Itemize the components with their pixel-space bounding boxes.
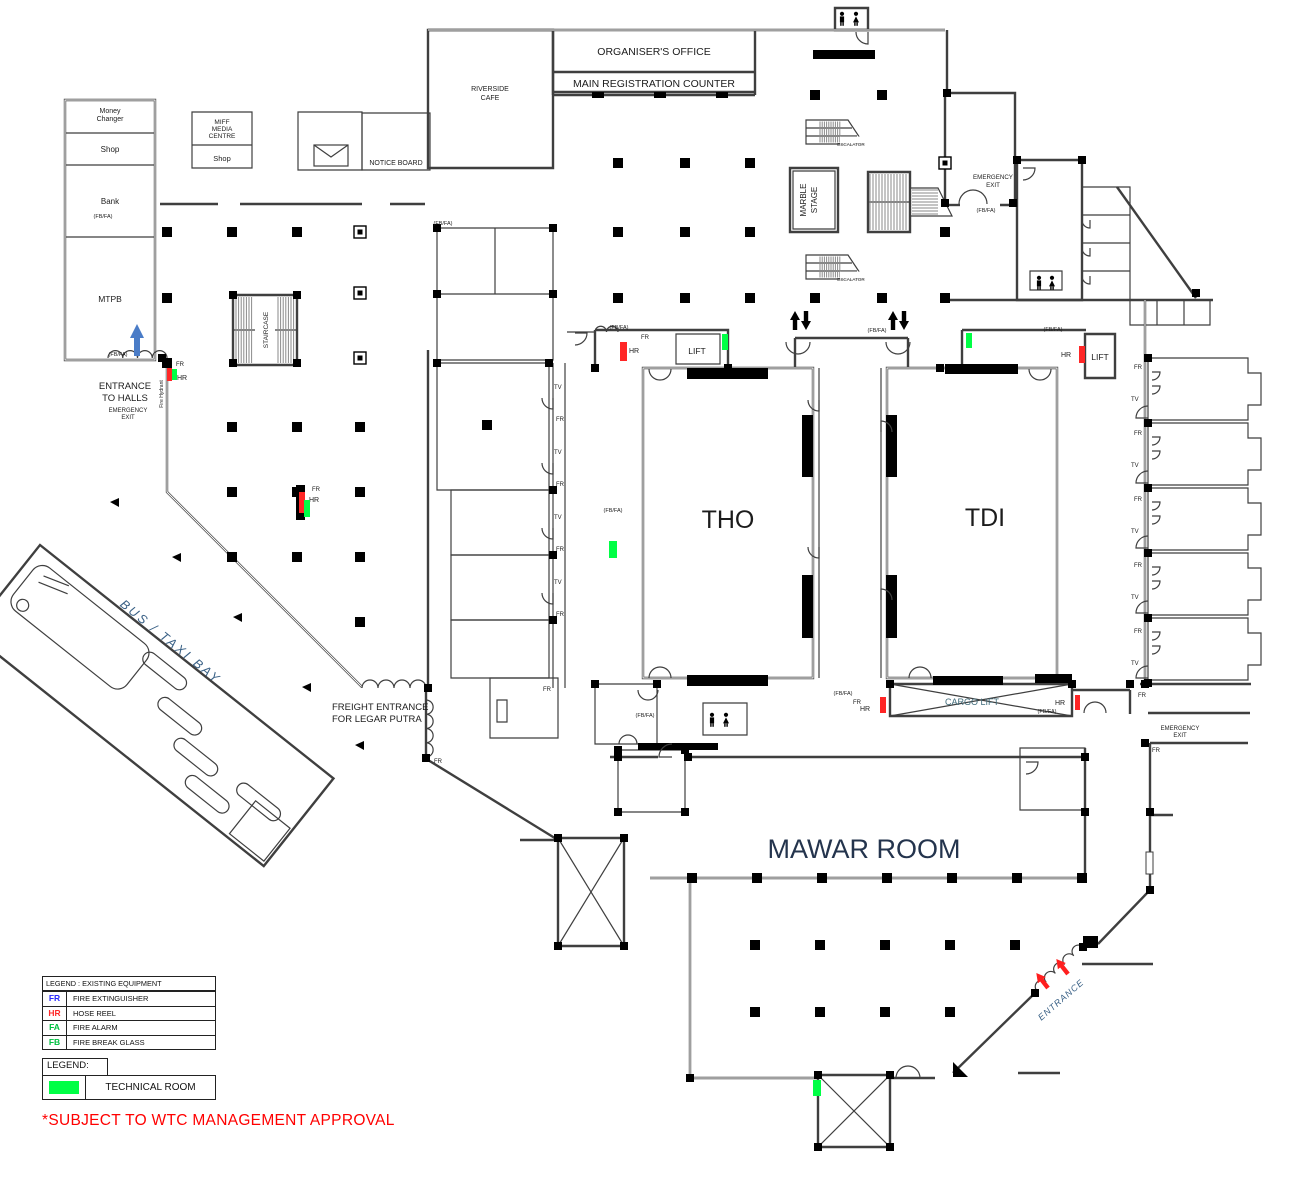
hose-reel-box	[1075, 695, 1080, 710]
technical-room-marker	[813, 1080, 821, 1096]
technical-room-label: TECHNICAL ROOM	[86, 1082, 215, 1093]
hose-reel-box	[620, 342, 627, 361]
label-bus-taxi-bay: BUS / TAXI BAY	[117, 597, 223, 687]
label-shop-top: Shop	[101, 145, 120, 154]
technical-legend-title: LEGEND:	[42, 1058, 108, 1076]
hose-reel-marker: HR	[629, 348, 639, 355]
labels-layer: Money Changer Shop Bank MTPB MIFF MEDIA …	[97, 46, 1200, 1022]
label-emergency-exit-tr: EMERGENCY	[973, 174, 1013, 181]
columns-layer	[110, 89, 1200, 1151]
fire-alarm-break-glass-marker: (FB/FA)	[109, 352, 128, 358]
label-miff: MIFF	[214, 119, 229, 126]
fire-extinguisher-marker: FR	[556, 482, 565, 488]
svg-text:MEDIA: MEDIA	[212, 126, 233, 133]
fire-extinguisher-marker: FR	[556, 612, 565, 618]
label-shop-mid: Shop	[213, 154, 231, 163]
tv-marker: TV	[1131, 529, 1139, 535]
label-mawar-room: MAWAR ROOM	[768, 834, 961, 864]
walls-layer	[65, 8, 1261, 1147]
technical-room-marker	[722, 334, 728, 350]
fire-extinguisher-marker: FR	[1134, 497, 1143, 503]
technical-room-marker	[609, 541, 617, 558]
label-bank: Bank	[101, 197, 120, 206]
fire-alarm-break-glass-marker: (FB/FA)	[636, 713, 655, 719]
label-tho: THO	[702, 506, 755, 534]
label-entrance-to-halls: ENTRANCE	[99, 381, 151, 392]
legend-row-fb: FB FIRE BREAK GLASS	[43, 1035, 215, 1050]
floor-plan-page: FRFRFRFRFRFRFRFRFRFRFRFRFRFRFRFRFRTVTVTV…	[0, 0, 1309, 1180]
equipment-legend-title: LEGEND : EXISTING EQUIPMENT	[43, 977, 215, 991]
fire-alarm-break-glass-marker: (FB/FA)	[604, 508, 623, 514]
fire-alarm-break-glass-marker: (FB/FA)	[94, 214, 113, 220]
doors-layer	[108, 32, 1160, 1078]
fire-alarm-break-glass-marker: (FB/FA)	[434, 221, 453, 227]
svg-text:EXIT: EXIT	[986, 182, 1000, 189]
tv-marker: TV	[554, 385, 562, 391]
tv-marker: TV	[554, 515, 562, 521]
label-money-changer: Money	[99, 108, 121, 115]
fire-extinguisher-marker: FR	[1152, 748, 1161, 754]
tv-marker: TV	[554, 450, 562, 456]
svg-text:EXIT: EXIT	[121, 415, 135, 421]
label-mtpb: MTPB	[98, 294, 122, 304]
notice-board-icon	[314, 145, 348, 166]
fire-alarm-break-glass-marker: (FB/FA)	[868, 328, 887, 334]
label-freight-entrance: FREIGHT ENTRANCE	[332, 702, 428, 713]
technical-room-marker	[966, 333, 972, 348]
fire-extinguisher-marker: FR	[556, 547, 565, 553]
hose-reel-marker: HR	[1055, 700, 1065, 707]
tv-marker: TV	[1131, 463, 1139, 469]
fire-alarm-break-glass-marker: (FB/FA)	[610, 325, 629, 331]
tv-marker: TV	[1131, 661, 1139, 667]
label-main-registration: MAIN REGISTRATION COUNTER	[573, 78, 735, 90]
fire-extinguisher-marker: FR	[176, 362, 185, 368]
fire-extinguisher-marker: FR	[1134, 365, 1143, 371]
tv-marker: TV	[1131, 397, 1139, 403]
label-marble-stage: MARBLE	[799, 184, 808, 217]
fire-extinguisher-marker: FR	[641, 335, 650, 341]
svg-text:Changer: Changer	[97, 116, 125, 123]
equipment-markers-layer: FRFRFRFRFRFRFRFRFRFRFRFRFRFRFRFRFRTVTVTV…	[94, 208, 1161, 1096]
label-lift-1: LIFT	[688, 346, 705, 356]
svg-text:EXIT: EXIT	[1173, 733, 1187, 739]
label-emergency-exit-br: EMERGENCY	[1161, 726, 1200, 732]
tv-marker: TV	[554, 580, 562, 586]
stair-hatch-layer	[236, 122, 938, 364]
label-tdi: TDI	[965, 504, 1005, 532]
label-notice-board: NOTICE BOARD	[369, 160, 422, 167]
bus-taxi-bay	[0, 545, 333, 866]
hose-reel-box	[880, 697, 886, 713]
technical-room-marker	[304, 500, 310, 517]
fire-extinguisher-marker: FR	[543, 687, 552, 693]
label-emergency-exit-tl: EMERGENCY	[109, 408, 148, 414]
fire-alarm-break-glass-marker: (FB/FA)	[1038, 709, 1057, 715]
technical-room-marker	[172, 369, 177, 380]
svg-text:TO HALLS: TO HALLS	[102, 393, 148, 404]
fire-extinguisher-marker: FR	[434, 759, 443, 765]
label-staircase: STAIRCASE	[263, 311, 270, 348]
fire-extinguisher-marker: FR	[1138, 693, 1147, 699]
label-lift-2: LIFT	[1091, 352, 1108, 362]
label-escalator-2: ESCALATOR	[837, 277, 865, 282]
hose-reel-box	[167, 368, 172, 381]
technical-legend: TECHNICAL ROOM	[42, 1075, 216, 1100]
label-riverside-cafe: RIVERSIDE	[471, 86, 509, 93]
svg-text:CENTRE: CENTRE	[209, 133, 236, 140]
hose-reel-marker: HR	[309, 497, 319, 504]
label-escalator-1: ESCALATOR	[837, 142, 865, 147]
fire-extinguisher-marker: FR	[312, 487, 321, 493]
approval-note: *SUBJECT TO WTC MANAGEMENT APPROVAL	[42, 1112, 395, 1130]
fire-alarm-break-glass-marker: (FB/FA)	[834, 691, 853, 697]
fire-extinguisher-marker: FR	[1134, 563, 1143, 569]
technical-room-swatch	[49, 1081, 79, 1094]
legend-row-fa: FA FIRE ALARM	[43, 1020, 215, 1035]
fire-extinguisher-marker: FR	[556, 417, 565, 423]
equipment-legend: LEGEND : EXISTING EQUIPMENT FR FIRE EXTI…	[42, 976, 216, 1050]
tv-marker: TV	[1131, 595, 1139, 601]
label-organisers-office: ORGANISER'S OFFICE	[597, 46, 710, 58]
label-cargo-lift: CARGO LIFT	[945, 697, 1000, 707]
hose-reel-marker: HR	[177, 375, 187, 382]
hose-reel-box	[1079, 346, 1085, 363]
fire-alarm-break-glass-marker: (FB/FA)	[977, 208, 996, 214]
label-fire-hydrant: Fire Hydrant	[159, 380, 165, 408]
legend-row-fr: FR FIRE EXTINGUISHER	[43, 991, 215, 1006]
legend-row-hr: HR HOSE REEL	[43, 1006, 215, 1021]
fire-alarm-break-glass-marker: (FB/FA)	[1044, 327, 1063, 333]
fire-extinguisher-marker: FR	[1134, 431, 1143, 437]
svg-text:STAGE: STAGE	[810, 187, 819, 214]
fire-extinguisher-marker: FR	[1134, 629, 1143, 635]
hose-reel-marker: HR	[860, 706, 870, 713]
svg-text:FOR LEGAR PUTRA: FOR LEGAR PUTRA	[332, 714, 422, 725]
solid-fills-layer	[296, 50, 1153, 948]
svg-text:CAFE: CAFE	[481, 95, 500, 102]
hose-reel-marker: HR	[1061, 352, 1071, 359]
